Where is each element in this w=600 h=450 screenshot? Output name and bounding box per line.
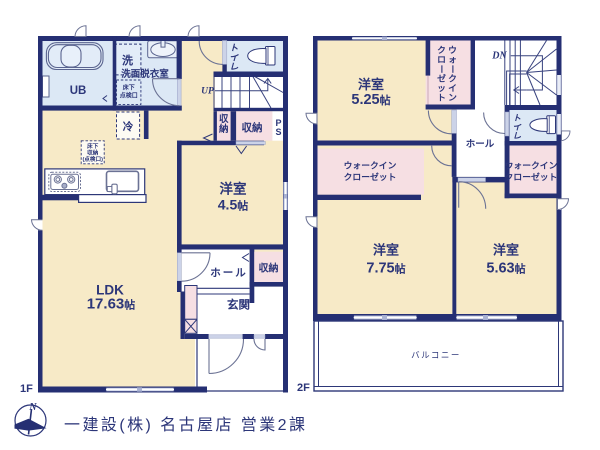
svg-text:ー: ー — [448, 65, 458, 74]
svg-text:床下: 床下 — [123, 84, 135, 92]
svg-text:冷: 冷 — [123, 120, 134, 133]
svg-text:(点検口): (点検口) — [82, 155, 103, 163]
svg-text:ン: ン — [448, 93, 457, 103]
svg-text:イ: イ — [448, 83, 457, 93]
svg-text:ロ: ロ — [437, 55, 446, 65]
svg-text:クローゼット: クローゼット — [505, 171, 558, 182]
svg-text:ホール: ホール — [210, 267, 248, 279]
svg-text:5.63帖: 5.63帖 — [486, 261, 525, 277]
svg-text:収納: 収納 — [242, 121, 263, 134]
svg-text:DN: DN — [491, 51, 507, 62]
svg-text:ト: ト — [437, 93, 446, 103]
svg-text:N: N — [28, 402, 37, 413]
svg-text:2F: 2F — [297, 382, 310, 394]
svg-text:ッ: ッ — [437, 83, 446, 93]
svg-text:ウォークイン: ウォークイン — [505, 161, 558, 171]
svg-text:1F: 1F — [20, 383, 33, 395]
svg-text:ク: ク — [437, 45, 446, 55]
svg-text:収納: 収納 — [259, 262, 279, 275]
svg-text:収納: 収納 — [87, 148, 99, 156]
svg-text:ウ: ウ — [448, 45, 457, 55]
svg-text:納: 納 — [219, 123, 229, 135]
svg-text:洗: 洗 — [122, 53, 133, 67]
svg-text:S: S — [275, 127, 281, 137]
svg-text:一建設(株) 名古屋店 営業2課: 一建設(株) 名古屋店 営業2課 — [64, 416, 305, 434]
svg-text:ゼ: ゼ — [437, 73, 446, 84]
svg-text:床下: 床下 — [87, 142, 99, 150]
svg-text:洋室: 洋室 — [373, 243, 399, 258]
svg-text:UP: UP — [201, 87, 214, 97]
svg-text:クローゼット: クローゼット — [344, 171, 397, 182]
svg-text:ー: ー — [437, 65, 447, 74]
svg-text:洋室: 洋室 — [358, 77, 384, 92]
svg-text:点検口: 点検口 — [120, 92, 138, 100]
svg-text:バルコニー: バルコニー — [411, 350, 461, 360]
svg-text:ク: ク — [448, 74, 457, 84]
svg-text:洋室: 洋室 — [493, 243, 519, 258]
svg-text:5.25帖: 5.25帖 — [351, 92, 390, 108]
svg-text:ォ: ォ — [448, 55, 457, 65]
svg-text:7.75帖: 7.75帖 — [366, 261, 405, 277]
svg-text:ウォークイン: ウォークイン — [344, 161, 397, 171]
svg-text:玄関: 玄関 — [227, 298, 250, 312]
svg-text:洋室: 洋室 — [220, 181, 247, 197]
svg-text:UB: UB — [70, 85, 87, 97]
svg-text:ホール: ホール — [466, 139, 495, 150]
